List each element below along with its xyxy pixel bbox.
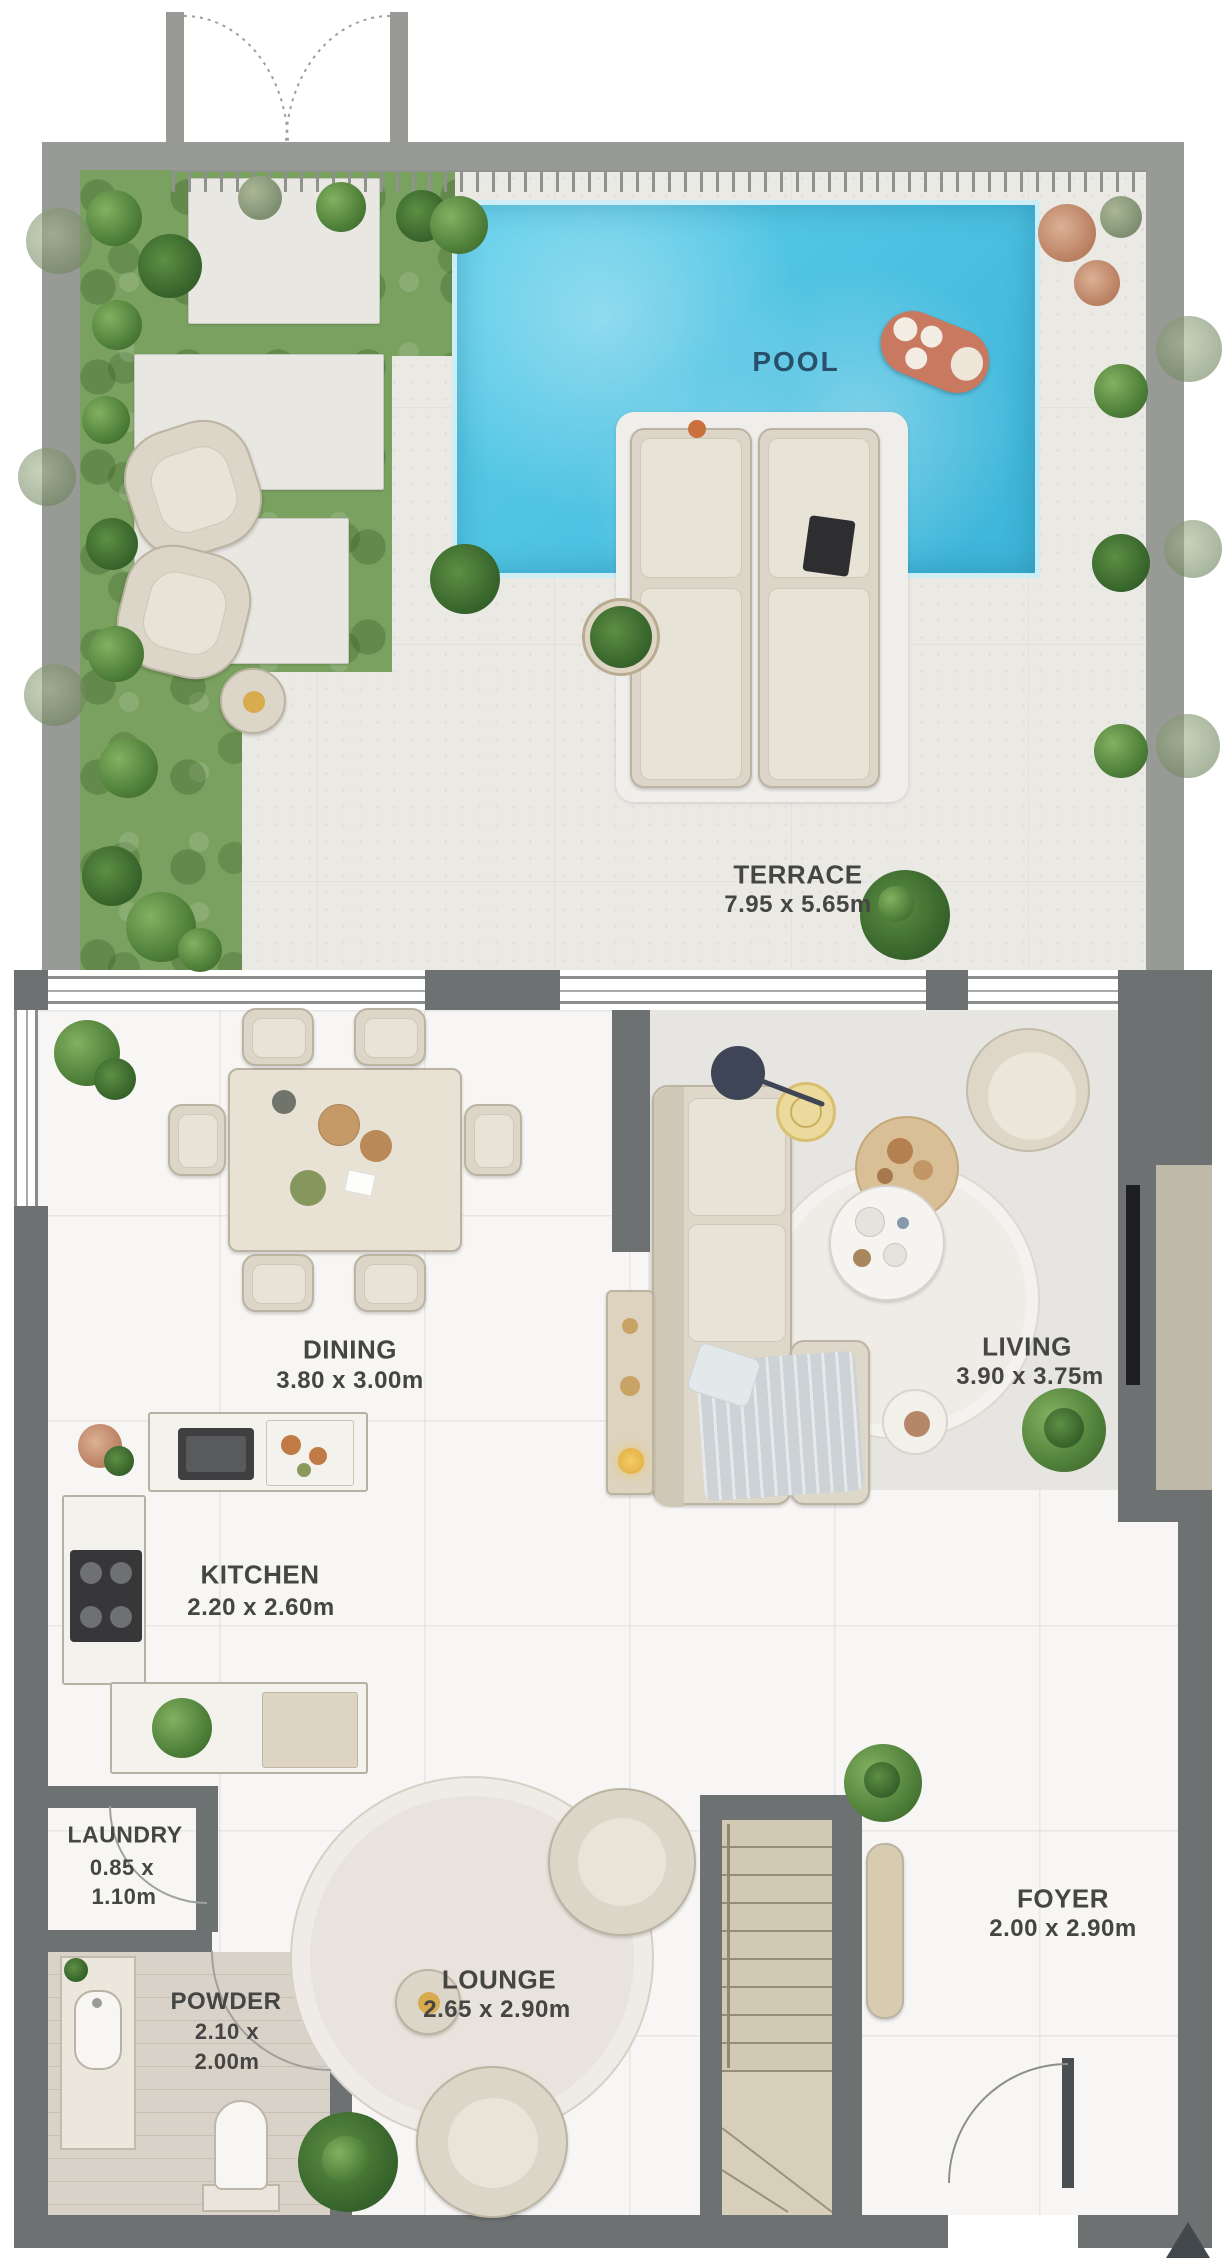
chair-cushion — [578, 1818, 666, 1906]
garden-bush — [1094, 364, 1148, 418]
garden-bush — [82, 846, 142, 906]
cup — [243, 691, 265, 713]
cutting-board — [266, 1420, 354, 1486]
entry-arrow — [1166, 2222, 1210, 2258]
plate — [360, 1130, 392, 1162]
lounger-seat — [768, 588, 870, 780]
flowering-shrub — [1074, 260, 1120, 306]
chair-cushion — [178, 1114, 218, 1168]
plant — [152, 1698, 212, 1758]
laundry-dims-1: 0.85 x — [90, 1855, 154, 1881]
appliance — [262, 1692, 358, 1768]
dining-label: DINING — [303, 1335, 397, 1366]
lounge-chair — [416, 2066, 568, 2218]
gate-post — [166, 12, 184, 170]
wall — [425, 970, 560, 1010]
coffee-table-white — [829, 1185, 945, 1301]
dining-chair — [242, 1254, 314, 1312]
tree — [18, 448, 76, 506]
food — [309, 1447, 327, 1465]
gate-post — [390, 12, 408, 170]
tree — [1156, 316, 1222, 382]
garden-bush — [238, 176, 282, 220]
salad-bowl — [290, 1170, 326, 1206]
tree — [26, 208, 92, 274]
window — [560, 976, 926, 1004]
living-dims: 3.90 x 3.75m — [956, 1363, 1103, 1391]
burner — [110, 1562, 132, 1584]
burner — [110, 1606, 132, 1628]
stair-rail — [727, 1824, 730, 2068]
wall — [1118, 970, 1212, 1010]
sink-basin — [186, 1436, 246, 1472]
powder-dims-1: 2.10 x — [195, 2019, 259, 2045]
plate — [318, 1104, 360, 1146]
wall — [1118, 1490, 1212, 1522]
chair-cushion — [364, 1264, 418, 1304]
powder-label: POWDER — [171, 1988, 282, 2016]
side-ledge — [1156, 1165, 1212, 1490]
burner — [80, 1562, 102, 1584]
living-label: LIVING — [982, 1332, 1072, 1363]
sofa-cushion — [688, 1098, 786, 1216]
kitchen-label: KITCHEN — [200, 1560, 319, 1591]
garden-bush — [88, 626, 144, 682]
kitchen-counter-top — [148, 1412, 368, 1492]
gate-door-arc — [286, 16, 390, 146]
garden-bush — [98, 738, 158, 798]
armchair-cushion — [137, 566, 232, 661]
pool-float-pillow — [902, 344, 931, 373]
papasan-chair — [966, 1028, 1090, 1152]
pool-float-pillow — [946, 342, 988, 386]
floor-lamp — [711, 1046, 765, 1100]
pool-label: POOL — [752, 346, 839, 378]
wall-left — [14, 1206, 48, 2248]
napkin — [344, 1169, 376, 1196]
tree — [1156, 714, 1220, 778]
rattan-stool — [776, 1082, 836, 1142]
chair-cushion — [364, 1018, 418, 1058]
garden-bush — [430, 196, 488, 254]
sofa-cushion — [688, 1224, 786, 1342]
garden-bush — [1094, 724, 1148, 778]
stairs — [722, 1820, 832, 2072]
window — [48, 976, 425, 1004]
plant — [864, 1762, 900, 1798]
powder-dims-2: 2.00m — [195, 2049, 260, 2075]
candle — [622, 1318, 638, 1334]
toilet-bowl — [214, 2100, 268, 2190]
tree — [1164, 520, 1222, 578]
laundry-label: LAUNDRY — [67, 1822, 182, 1849]
dining-table — [228, 1068, 462, 1252]
garden-bush — [1100, 196, 1142, 238]
wall — [14, 970, 48, 1010]
stairs-lower — [722, 2072, 832, 2215]
plant — [322, 2136, 370, 2184]
chair-cushion — [474, 1114, 514, 1168]
stool-ring — [790, 1096, 822, 1128]
garden-bush — [430, 544, 500, 614]
burner — [80, 1606, 102, 1628]
garden-bush — [316, 182, 366, 232]
sun-lounger — [630, 428, 752, 788]
chair-cushion — [252, 1018, 306, 1058]
candle — [620, 1376, 640, 1396]
dining-chair — [354, 1008, 426, 1066]
food — [904, 1411, 930, 1437]
plate — [883, 1243, 907, 1267]
plant — [1044, 1408, 1084, 1448]
herbs — [297, 1463, 311, 1477]
entry-door-leaf — [1062, 2058, 1074, 2188]
armchair-cushion — [144, 439, 245, 540]
kitchen-counter-bottom — [110, 1682, 368, 1774]
wall-right — [1178, 1522, 1212, 2248]
wall-laundry-top — [48, 1786, 218, 1808]
foyer-label: FOYER — [1017, 1884, 1109, 1915]
wall-laundry-right — [196, 1786, 218, 1932]
vanity — [60, 1956, 136, 2150]
pastry — [913, 1160, 933, 1180]
garden-bush — [86, 518, 138, 570]
laundry-dims-2: 1.10m — [92, 1884, 157, 1910]
sink — [178, 1428, 254, 1480]
garden-bush — [878, 886, 914, 922]
sofa-back — [654, 1087, 684, 1507]
pool-float-pillow — [917, 322, 946, 351]
dining-chair — [242, 1008, 314, 1066]
floor-plate — [882, 1389, 948, 1455]
lit-candle — [618, 1448, 644, 1474]
dining-chair — [168, 1104, 226, 1176]
food-board — [887, 1138, 913, 1164]
tablet — [802, 515, 855, 577]
garden-bush — [82, 396, 130, 444]
tree — [24, 664, 86, 726]
garden-bush — [138, 234, 202, 298]
faucet — [92, 1998, 102, 2008]
dining-chair — [354, 1254, 426, 1312]
cooktop — [70, 1550, 142, 1642]
lounge-label: LOUNGE — [442, 1965, 556, 1996]
terrace-label: TERRACE — [733, 860, 862, 891]
wall-stairs-left — [700, 1795, 722, 2215]
drink-cup — [688, 420, 706, 438]
dish — [272, 1090, 296, 1114]
wall-corner-block — [1118, 1010, 1212, 1165]
tv — [1126, 1185, 1140, 1385]
lounge-chair — [548, 1788, 696, 1936]
plate — [855, 1207, 885, 1237]
cup — [897, 1217, 909, 1229]
plant — [64, 1958, 88, 1982]
wall-powder-top — [48, 1930, 212, 1952]
foyer-dims: 2.00 x 2.90m — [989, 1915, 1136, 1943]
food — [281, 1435, 301, 1455]
chair-cushion — [252, 1264, 306, 1304]
wall-bottom — [14, 2215, 948, 2248]
plant — [94, 1058, 136, 1100]
garden-bush — [178, 928, 222, 972]
window — [14, 1010, 38, 1206]
garden-bush — [92, 300, 142, 350]
papasan-cushion — [988, 1052, 1076, 1140]
plant — [590, 606, 652, 668]
window — [968, 976, 1118, 1004]
floor-plan: POOL TERRACE 7.95 x 5.65m — [0, 0, 1224, 2260]
terrace-dims: 7.95 x 5.65m — [724, 891, 871, 919]
garden-bush — [86, 190, 142, 246]
sun-lounger — [758, 428, 880, 788]
deck-ticks — [172, 170, 1146, 192]
gate-door-arc — [184, 16, 288, 146]
lounger-seat — [640, 588, 742, 780]
pool-float-pillow — [890, 314, 921, 345]
foyer-bench — [866, 1843, 904, 2019]
dining-dims: 3.80 x 3.00m — [276, 1367, 423, 1395]
dining-chair — [464, 1104, 522, 1176]
plant — [104, 1446, 134, 1476]
wall — [612, 1010, 650, 1252]
chair-cushion — [448, 2098, 538, 2188]
wall — [926, 970, 968, 1010]
terrace-side-table — [220, 668, 286, 734]
pastry — [877, 1168, 893, 1184]
flowering-shrub — [1038, 204, 1096, 262]
terrace-wall-top — [42, 142, 1184, 170]
lounger-backrest — [640, 438, 742, 578]
garden-bush — [1092, 534, 1150, 592]
wall-stairs-right — [832, 1795, 862, 2215]
lounge-dims: 2.65 x 2.90m — [423, 1996, 570, 2024]
pastry — [853, 1249, 871, 1267]
console-table — [606, 1290, 654, 1495]
kitchen-dims: 2.20 x 2.60m — [187, 1594, 334, 1622]
